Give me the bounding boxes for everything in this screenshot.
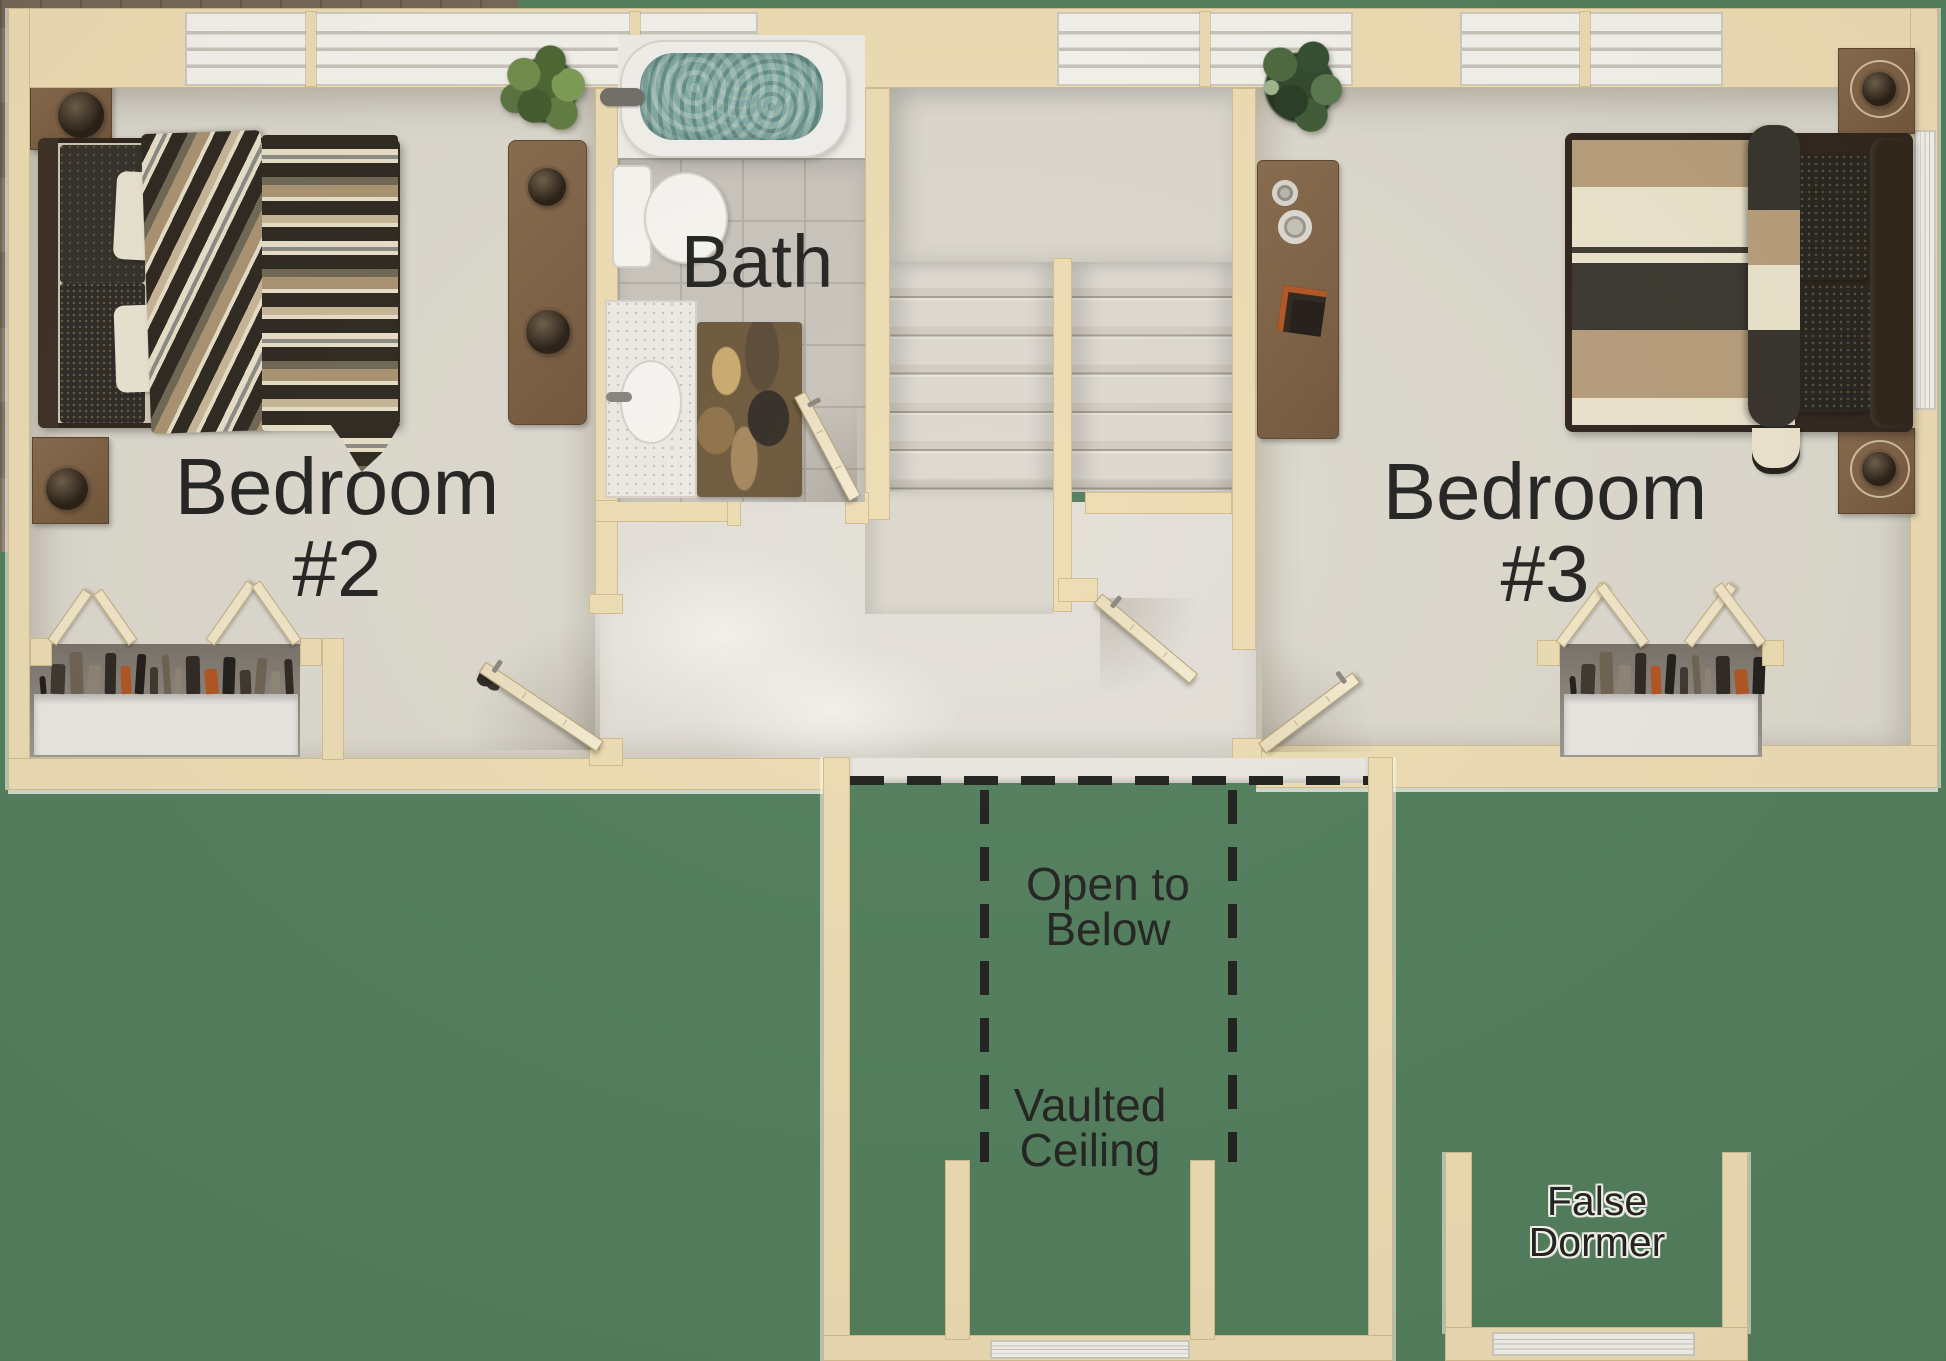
shoe-icon (87, 665, 101, 695)
closet-shelf (1564, 694, 1758, 755)
window (990, 1340, 1190, 1359)
stair-top-landing (890, 88, 1232, 262)
bathtub-water (640, 53, 823, 140)
stairwell-wall-right (1232, 88, 1256, 650)
shoe-icon (50, 664, 65, 694)
closet-wall (322, 638, 344, 760)
shoe-icon (174, 668, 181, 694)
room-label-bedroom3: Bedroom#3 (1383, 451, 1708, 615)
stair-lower-landing (865, 492, 1053, 614)
label-false-dormer: FalseDormer (1529, 1181, 1666, 1263)
open-below-wall-right (1368, 757, 1393, 1361)
shoe-icon (271, 671, 280, 694)
shoe-icon (69, 652, 83, 694)
pillow (1790, 285, 1873, 412)
shoe-icon (150, 667, 158, 694)
books-icon (1277, 285, 1327, 337)
window (1492, 1332, 1695, 1356)
closet-jamb (1537, 640, 1560, 666)
striped-duvet (262, 135, 398, 431)
lamp-icon (1862, 452, 1896, 486)
shoe-icon (135, 654, 147, 695)
shoe-icon (186, 656, 201, 694)
window-mullion (1580, 12, 1590, 86)
shoe-icon (1635, 653, 1647, 694)
knob-icon (526, 310, 570, 354)
false-dormer-wall-right (1722, 1152, 1748, 1334)
ceiling-break-line (850, 776, 1368, 785)
stair-divider-wall (1053, 258, 1072, 612)
knob-icon (528, 168, 566, 206)
blanket-tail (1752, 428, 1800, 474)
window-alcove-wall (1190, 1160, 1215, 1340)
label-open-to-below: Open toBelow (1026, 862, 1190, 952)
closet-jamb (300, 638, 322, 666)
shoe-icon (1580, 664, 1595, 694)
closet-jamb (30, 638, 52, 666)
lamp-icon (58, 92, 104, 138)
bath-rug (697, 322, 802, 497)
shoe-icon (222, 657, 235, 694)
closet-shoes (1564, 648, 1758, 694)
cup-icon (1272, 180, 1298, 206)
window-mullion (1200, 12, 1210, 86)
shoe-icon (105, 653, 117, 694)
tub-faucet-icon (600, 88, 644, 106)
bed (1565, 133, 1913, 432)
shoe-icon (204, 668, 219, 694)
shoe-icon (120, 666, 131, 694)
false-dormer-wall-left (1445, 1152, 1472, 1334)
rolled-blanket (1748, 125, 1800, 427)
door-jamb (1058, 578, 1098, 602)
shoe-icon (240, 670, 252, 694)
sink (620, 360, 682, 444)
stair-flight-left (890, 262, 1053, 492)
headboard (1870, 138, 1910, 428)
shoe-icon (162, 655, 172, 694)
label-vaulted-ceiling: VaultedCeiling (1014, 1083, 1167, 1173)
ceiling-break-line (980, 790, 989, 1162)
bed (38, 138, 400, 428)
stair-flight-right (1072, 262, 1232, 492)
window-alcove-wall (945, 1160, 970, 1340)
window (1914, 130, 1936, 410)
shoe-icon (1716, 656, 1731, 694)
shoe-icon (1680, 667, 1688, 694)
shoe-icon (1692, 655, 1702, 694)
bath-wall-bottom (595, 500, 740, 522)
shoe-icon (284, 659, 294, 694)
closet-shelf (34, 694, 298, 755)
lamp-icon (1862, 72, 1896, 106)
door-jamb (589, 594, 623, 614)
shoe-icon (1704, 668, 1711, 694)
cup-icon (1278, 210, 1312, 244)
window (1460, 12, 1723, 86)
exterior-wall-bottom-left (8, 758, 850, 790)
shoe-icon (1569, 676, 1577, 694)
exterior-wall-left (8, 8, 30, 790)
bath-wall-right (865, 88, 890, 520)
window-mullion (306, 12, 316, 86)
shoe-icon (1650, 666, 1661, 694)
stair-half-wall (1085, 492, 1232, 514)
sink-faucet-icon (606, 392, 632, 402)
room-label-bedroom2: Bedroom#2 (175, 446, 500, 610)
shoe-icon (1734, 668, 1749, 694)
shoe-icon (1617, 665, 1631, 695)
pillow (1793, 155, 1872, 280)
shoe-icon (254, 658, 267, 695)
headboard (38, 138, 58, 428)
room-label-bath: Bath (681, 225, 833, 299)
shoe-icon (1665, 654, 1677, 695)
floor-plan: Bedroom#2 Bath Bedroom#3 Open toBelow Va… (0, 0, 1946, 1361)
closet-shoes (34, 648, 296, 694)
lamp-icon (46, 468, 88, 510)
shoe-icon (39, 676, 47, 694)
shoe-icon (1599, 652, 1613, 694)
open-below-wall-left (823, 757, 850, 1361)
striped-duvet-fold (141, 130, 271, 434)
ceiling-break-line (1228, 790, 1237, 1162)
closet-jamb (1762, 640, 1784, 666)
